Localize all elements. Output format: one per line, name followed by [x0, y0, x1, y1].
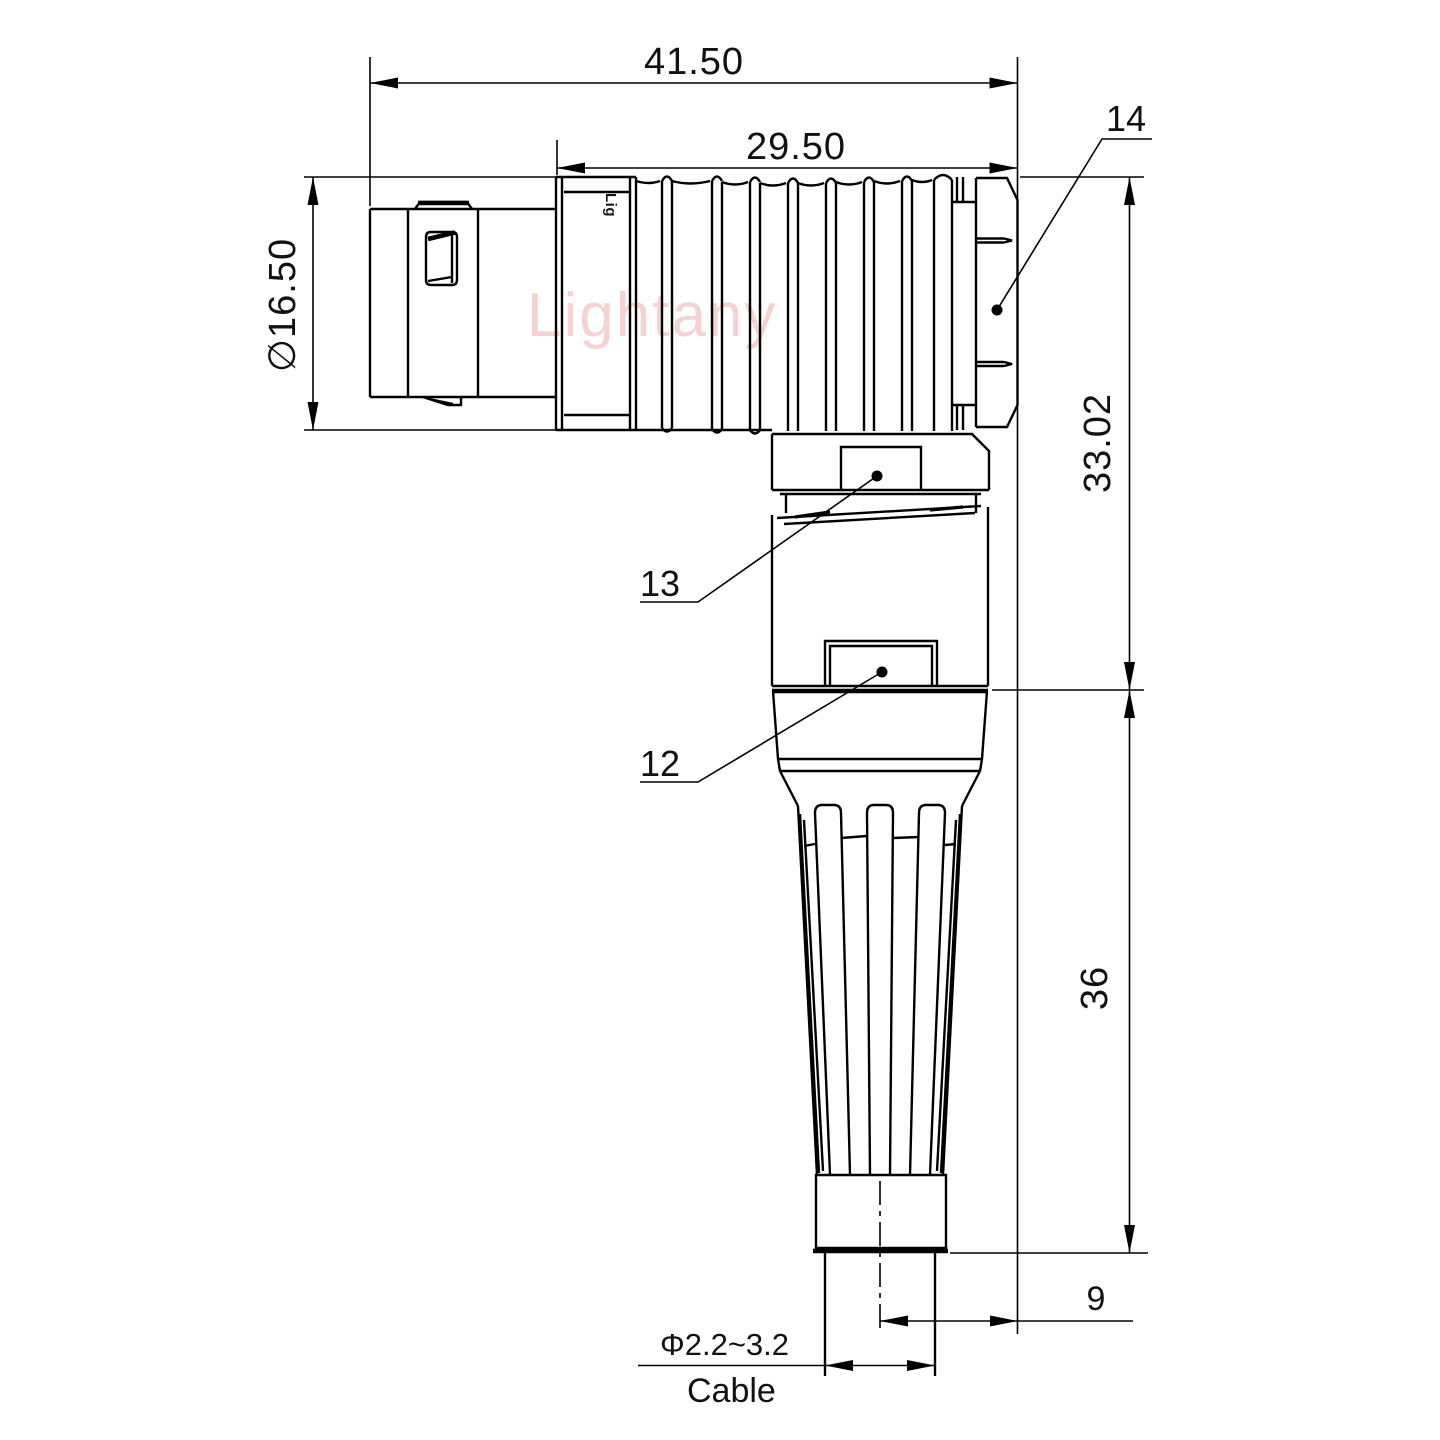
arrow-left-cable	[825, 1360, 853, 1371]
boot-shoulders	[780, 771, 980, 806]
arrow-left-9	[880, 1316, 908, 1327]
dim-text-36: 36	[1074, 966, 1116, 1010]
label-text-14: 14	[1106, 98, 1146, 139]
dim-text-cable-range: Φ2.2~3.2	[660, 1327, 789, 1362]
elbow-body	[772, 434, 989, 691]
arrow-bottom-33-02	[1124, 662, 1135, 690]
label-14: 14	[992, 98, 1153, 316]
shell-logo-text: Lig	[602, 193, 619, 217]
boot-edge-ribs	[800, 814, 960, 1173]
dimension-36: 36	[950, 690, 1148, 1253]
arrow-right-9	[990, 1316, 1018, 1327]
hex-back-nut	[976, 178, 1018, 427]
arrow-bottom-16-50	[308, 402, 319, 430]
arrow-left-29-50	[557, 163, 585, 174]
sleeve-detent-12	[825, 641, 937, 686]
dimension-29-50: 29.50	[557, 126, 1018, 175]
elbow-neck	[786, 494, 976, 513]
extension-lines-33-02	[992, 177, 1144, 690]
dim-text-33-02: 33.02	[1077, 393, 1119, 493]
dim-text-41-50: 41.50	[644, 41, 744, 83]
grip-surface-top	[636, 180, 932, 186]
dim-text-9: 9	[1087, 1280, 1106, 1318]
collar-detent-13	[841, 447, 921, 490]
nut-groove	[953, 177, 976, 430]
arrow-right-cable	[907, 1360, 935, 1371]
bayonet-window-inner	[428, 234, 452, 283]
strain-relief-boot	[773, 691, 987, 1376]
dim-text-16-50: ∅16.50	[262, 238, 304, 372]
arrow-bottom-36	[1124, 1225, 1135, 1253]
extension-lines-41-50	[370, 57, 1018, 1334]
elbow-cylinder	[772, 507, 988, 686]
cable-collar-block	[816, 1175, 946, 1248]
dimension-41-50: 41.50	[370, 41, 1018, 1334]
cable-label-text: Cable	[687, 1372, 776, 1410]
boot-prong-center	[867, 805, 893, 1175]
elbow-collar	[772, 434, 989, 494]
arrow-top-16-50	[308, 177, 319, 205]
watermark-text: Lightany	[527, 281, 777, 350]
label-text-12: 12	[640, 743, 680, 784]
label-text-13: 13	[640, 563, 680, 604]
dimension-9: 9	[880, 1280, 1133, 1327]
connector-drawing-svg: Lightany	[0, 0, 1440, 1440]
boot-webs	[804, 836, 956, 846]
nut-outline	[976, 178, 1018, 427]
arrow-right-29-50	[990, 163, 1018, 174]
nut-facet-lines	[976, 239, 1012, 367]
arrow-top-33-02	[1124, 177, 1135, 205]
dimension-33-02: 33.02	[992, 177, 1144, 690]
boot-top-band	[773, 691, 987, 771]
arrow-left-41-50	[370, 78, 398, 89]
arrow-right-41-50	[990, 78, 1018, 89]
arrow-top-36	[1124, 690, 1135, 718]
extension-lines-16-50	[304, 177, 556, 430]
technical-drawing-page: Lightany	[0, 0, 1440, 1440]
dimension-cable: Φ2.2~3.2 Cable	[638, 1327, 935, 1410]
leader-dot-14	[992, 305, 1003, 316]
dim-text-29-50: 29.50	[746, 126, 846, 168]
